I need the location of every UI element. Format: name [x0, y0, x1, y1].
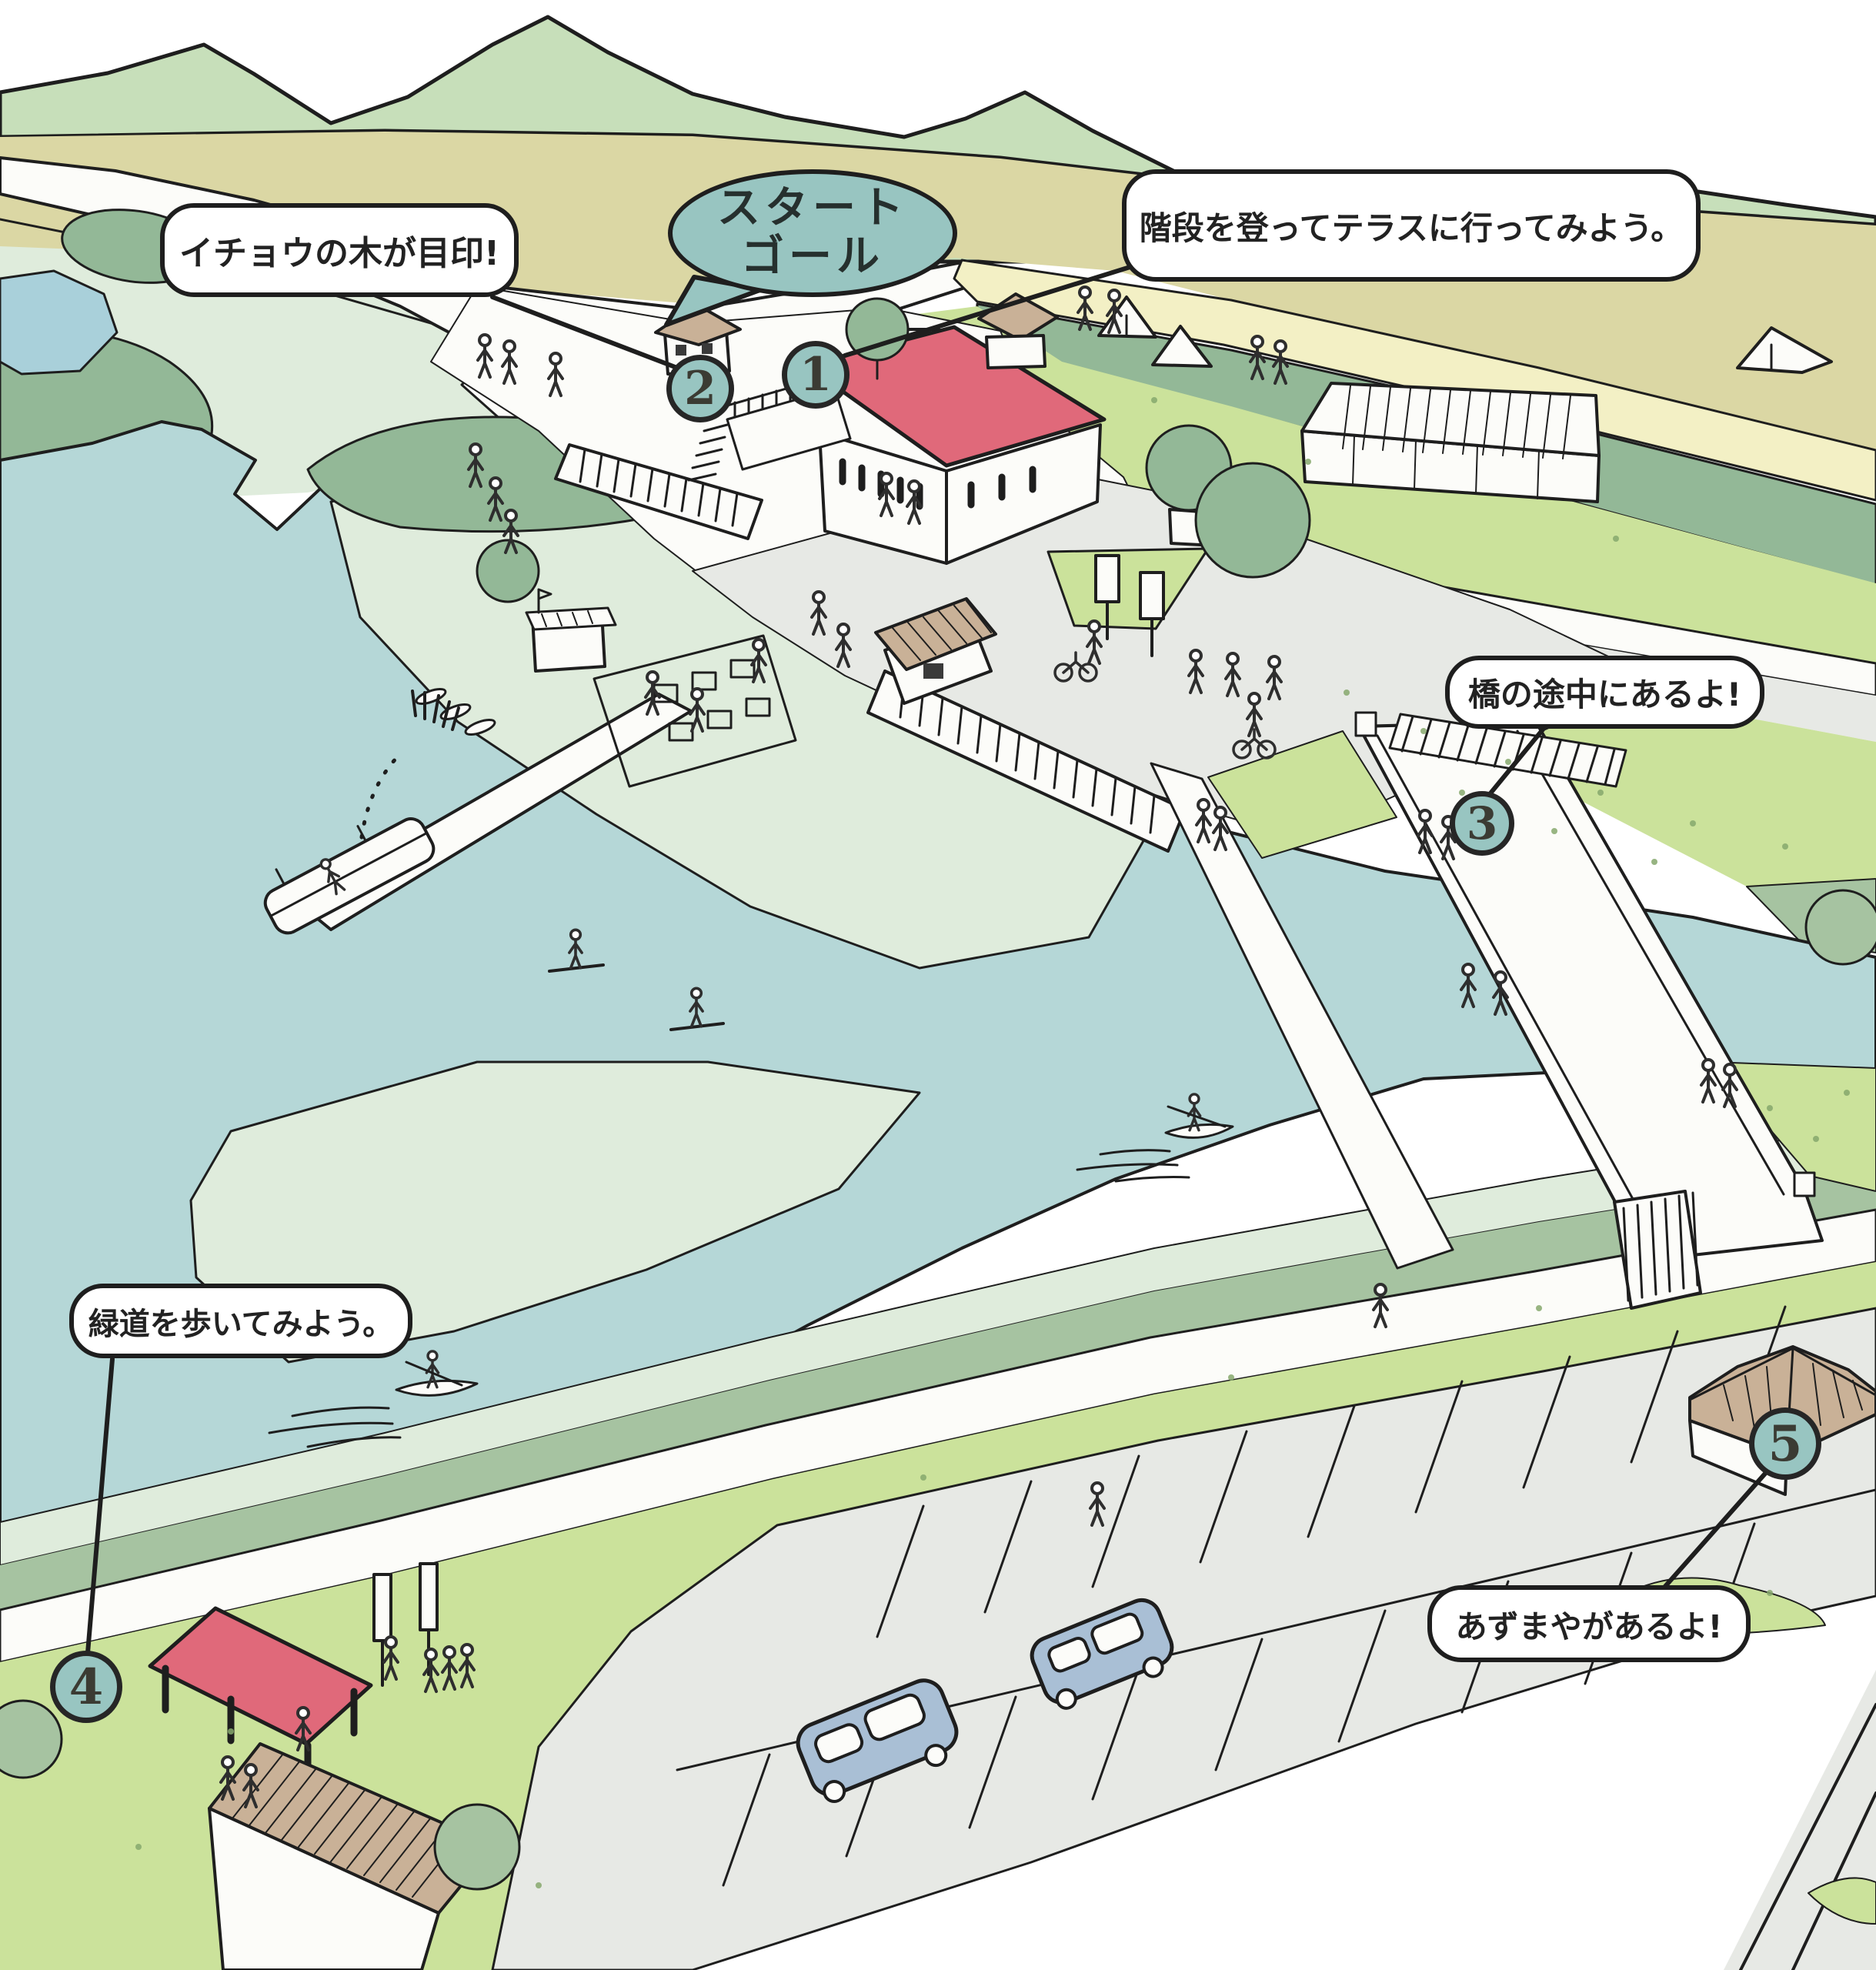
bridge-pier	[1614, 1191, 1701, 1308]
checkpoint-marker-4: 4	[50, 1651, 122, 1723]
goal-label: ゴール	[741, 233, 884, 282]
illustrated-course-map: スタート ゴール イチョウの木が目印! 階段を登ってテラスに行ってみよう。 橋の…	[0, 0, 1876, 1970]
checkpoint-marker-3: 3	[1450, 791, 1514, 856]
marker-number: 3	[1467, 797, 1497, 850]
annotation-text: イチョウの木が目印!	[179, 225, 499, 275]
annotation-bubble-ginkgo: イチョウの木が目印!	[160, 203, 519, 297]
marker-number: 2	[684, 362, 716, 416]
annotation-text: 橋の途中にあるよ!	[1468, 669, 1741, 716]
greenhouse	[1302, 383, 1599, 502]
checkpoint-marker-5: 5	[1749, 1407, 1821, 1480]
start-label: スタート	[717, 185, 908, 233]
checkpoint-marker-1: 1	[782, 341, 850, 409]
marker-number: 4	[69, 1658, 104, 1716]
corner-road	[1724, 1670, 1876, 1970]
annotation-text: あずまやがあるよ!	[1456, 1601, 1723, 1647]
annotation-bubble-terrace: 階段を登ってテラスに行ってみよう。	[1122, 169, 1701, 282]
annotation-bubble-bridge: 橋の途中にあるよ!	[1445, 656, 1764, 729]
marker-number: 1	[799, 348, 832, 402]
checkpoint-marker-2: 2	[666, 355, 734, 422]
annotation-text: 階段を登ってテラスに行ってみよう。	[1140, 202, 1683, 249]
start-goal-bubble: スタート ゴール	[668, 169, 957, 297]
annotation-bubble-greenway: 緑道を歩いてみよう。	[69, 1284, 412, 1358]
annotation-text: 緑道を歩いてみよう。	[88, 1299, 393, 1344]
marker-number: 5	[1768, 1415, 1803, 1473]
annotation-bubble-azumaya: あずまやがあるよ!	[1427, 1585, 1751, 1662]
